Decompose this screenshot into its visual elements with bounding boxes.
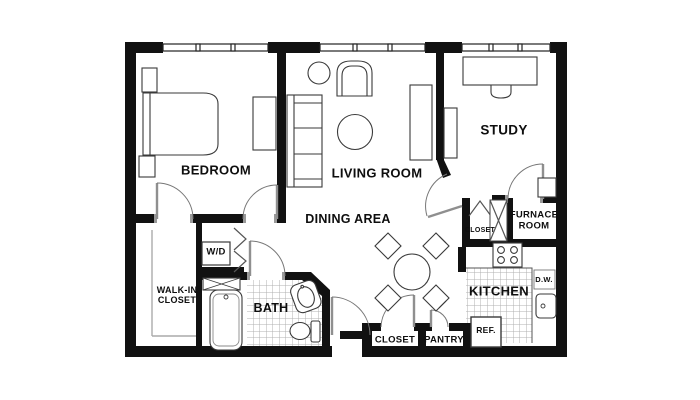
dining-table	[394, 254, 430, 290]
windows	[163, 44, 550, 51]
living-study-wall	[436, 53, 444, 160]
bedroom-living-wall	[277, 53, 286, 223]
bedroom-hall-door	[243, 185, 277, 219]
room-label-furnace-room: FURNACE ROOM	[510, 210, 559, 231]
wd-bifold-doors	[234, 228, 246, 272]
room-label-walk-in-closet: WALK-IN CLOSET	[157, 285, 198, 305]
cabinet	[538, 178, 556, 197]
armchair	[337, 61, 372, 96]
coffee-table	[338, 115, 373, 150]
dining-chair	[375, 233, 401, 259]
room-label-kitchen: KITCHEN	[469, 285, 529, 300]
study-angled-wall-stub	[436, 158, 451, 178]
desk-chair	[491, 85, 511, 98]
floor-plan: BEDROOM LIVING ROOM STUDY DINING AREA WA…	[0, 0, 700, 400]
kitchen-sink	[536, 294, 556, 318]
room-label-pantry: PANTRY	[424, 336, 464, 347]
room-label-entry-closet: CLOSET	[375, 336, 415, 347]
nightstand	[142, 68, 157, 92]
desk	[463, 57, 537, 85]
walk-in-closet-rod	[152, 230, 196, 336]
study-window	[462, 44, 550, 51]
dining-furniture	[375, 233, 449, 311]
room-label-living-room: LIVING ROOM	[332, 167, 423, 182]
pantry-block-right-wall	[463, 323, 471, 357]
bookshelf	[444, 108, 457, 158]
label-dishwasher: D.W.	[535, 276, 552, 284]
living-room-window	[320, 44, 425, 51]
bathtub	[210, 290, 242, 350]
nightstand	[139, 156, 155, 177]
room-label-hall-closet: CLOSET	[465, 227, 495, 235]
room-label-study: STUDY	[480, 122, 527, 137]
tv-cabinet	[410, 85, 432, 160]
linen-shelf	[203, 278, 240, 290]
bedroom-window	[163, 44, 268, 51]
room-label-bath: BATH	[254, 301, 289, 315]
side-table	[308, 62, 330, 84]
study-door	[426, 174, 462, 217]
dresser	[253, 97, 276, 150]
room-label-bedroom: BEDROOM	[181, 164, 251, 179]
bedroom-furniture	[139, 68, 276, 177]
room-label-dining-area: DINING AREA	[305, 212, 390, 226]
dining-chair	[423, 285, 449, 311]
bedroom-closet-door	[157, 183, 193, 219]
kitchen-left-wall	[458, 247, 466, 272]
dining-chair	[375, 285, 401, 311]
pantry-door	[431, 310, 448, 327]
bed	[143, 93, 218, 155]
bath-door	[250, 241, 285, 276]
label-refrigerator: REF.	[476, 326, 496, 336]
sofa	[287, 95, 322, 187]
label-washer-dryer: W/D	[206, 248, 225, 259]
bath-right-wall	[322, 296, 330, 346]
stove	[493, 243, 522, 267]
floor-plan-graphic	[0, 0, 700, 400]
dining-chair	[423, 233, 449, 259]
